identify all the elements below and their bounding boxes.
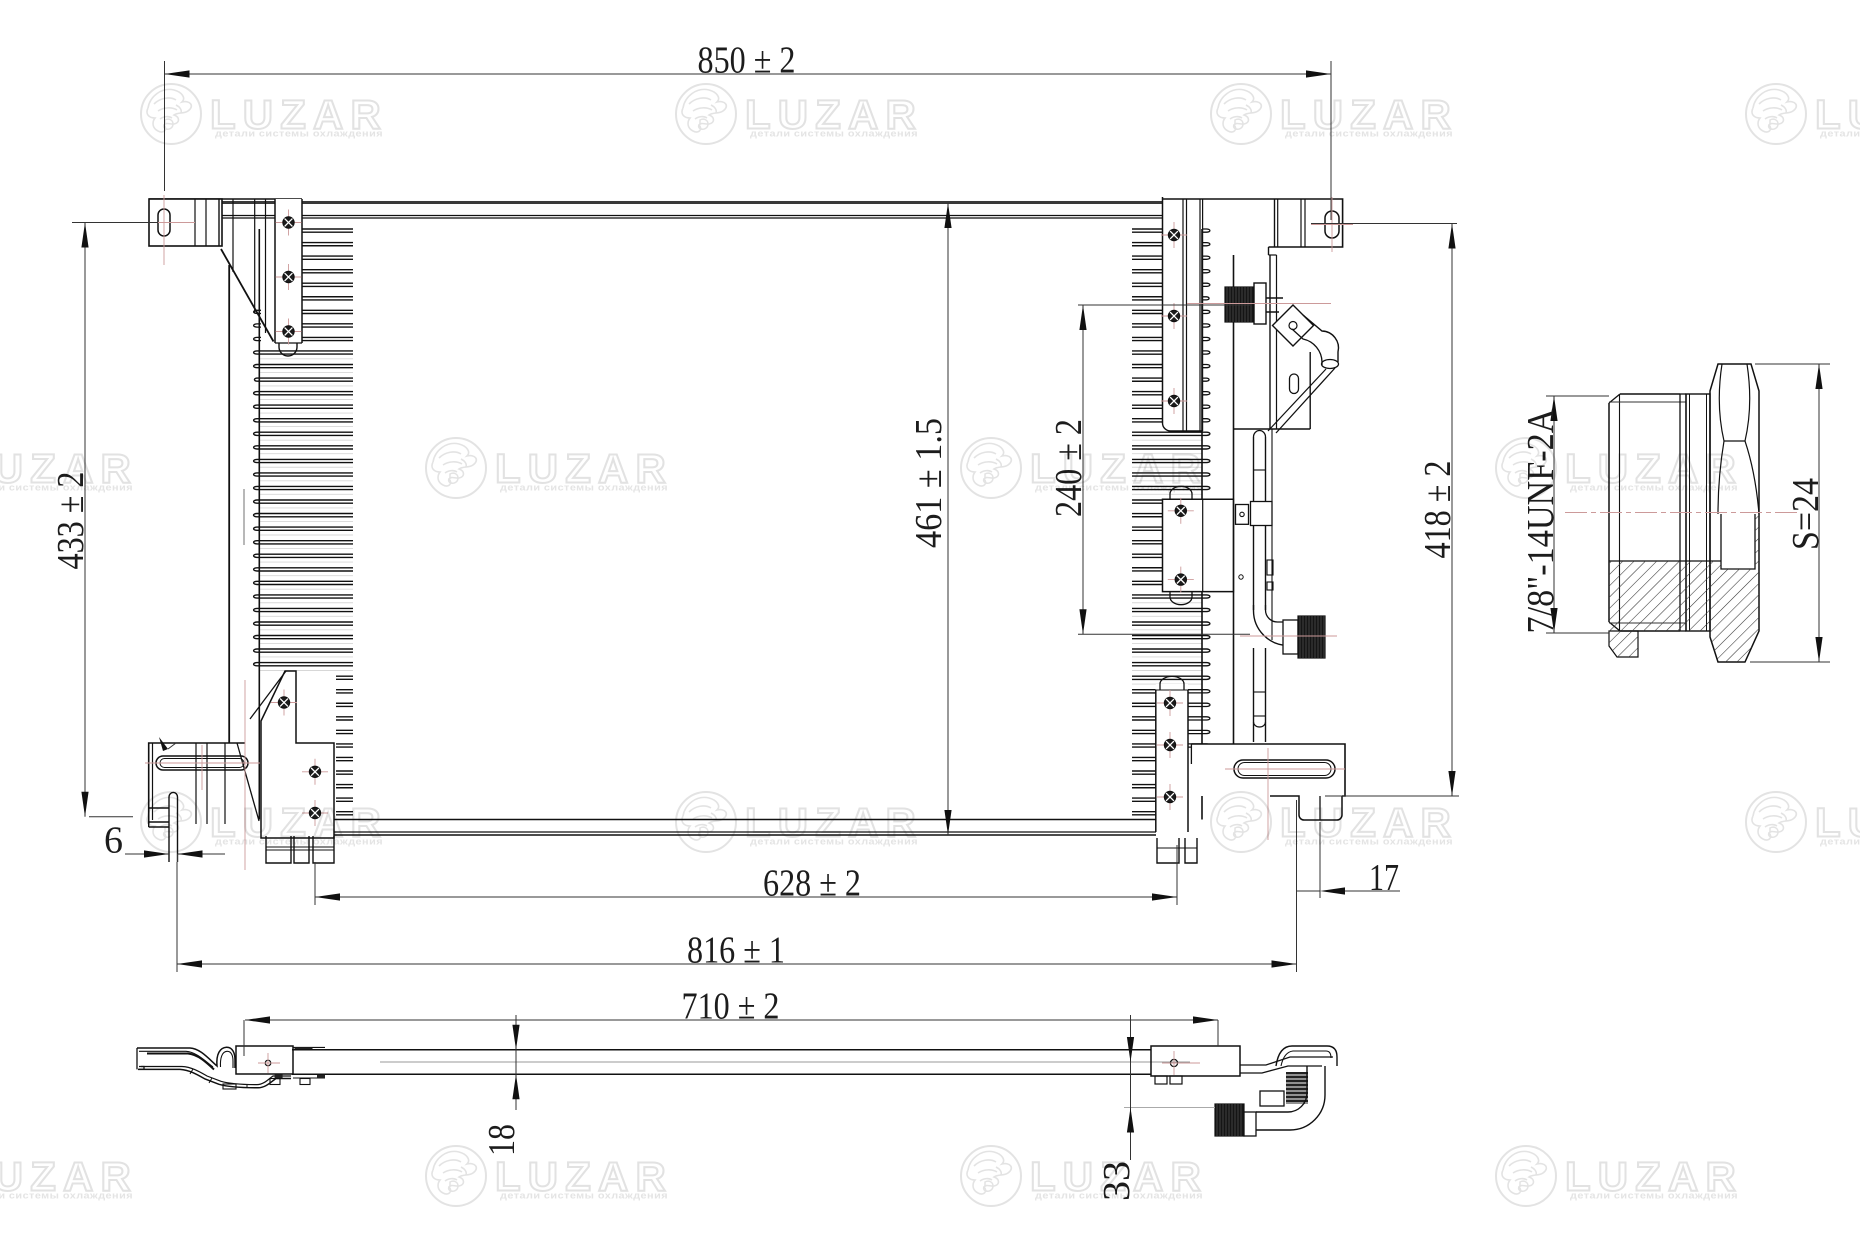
- svg-text:18: 18: [481, 1124, 523, 1156]
- svg-text:850 ± 2: 850 ± 2: [698, 40, 796, 82]
- svg-text:17: 17: [1369, 857, 1399, 899]
- svg-text:6: 6: [104, 820, 123, 862]
- svg-text:461 ± 1.5: 461 ± 1.5: [908, 418, 950, 548]
- svg-text:418 ± 2: 418 ± 2: [1417, 461, 1459, 559]
- svg-text:628 ± 2: 628 ± 2: [763, 863, 861, 905]
- svg-text:816 ± 1: 816 ± 1: [687, 930, 785, 972]
- svg-text:S=24: S=24: [1785, 478, 1827, 550]
- svg-text:710 ± 2: 710 ± 2: [682, 986, 780, 1028]
